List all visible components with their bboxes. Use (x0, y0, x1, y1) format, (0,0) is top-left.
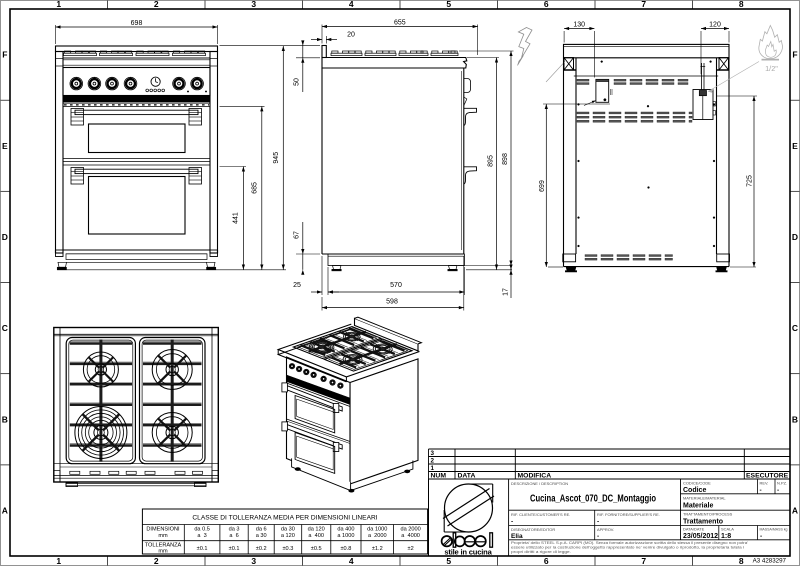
svg-text:TRATTAMENTO/PROCESS: TRATTAMENTO/PROCESS (683, 512, 733, 517)
svg-text:120: 120 (709, 21, 721, 28)
svg-text:da 120: da 120 (308, 527, 325, 533)
svg-text:MASSA/MASS kg: MASSA/MASS kg (760, 527, 788, 532)
svg-text:4: 4 (349, 0, 354, 9)
svg-text:1: 1 (56, 0, 61, 9)
svg-text:25: 25 (293, 282, 301, 289)
svg-text:±0.1: ±0.1 (197, 546, 208, 552)
svg-text:da 0.5: da 0.5 (194, 527, 210, 533)
svg-text:da 30: da 30 (281, 527, 295, 533)
svg-text:-: - (760, 533, 762, 540)
svg-text:da 400: da 400 (337, 527, 354, 533)
svg-text:20: 20 (347, 32, 355, 39)
svg-text:Elia: Elia (511, 533, 523, 540)
svg-text:698: 698 (131, 20, 143, 27)
svg-text:5: 5 (446, 0, 451, 9)
svg-text:a 30: a 30 (256, 533, 267, 539)
svg-text:895: 895 (488, 155, 495, 167)
svg-text:945: 945 (273, 152, 280, 164)
svg-text:da 2000: da 2000 (400, 527, 420, 533)
svg-text:598: 598 (386, 299, 398, 306)
svg-text:±2: ±2 (408, 546, 414, 552)
svg-text:±0.1: ±0.1 (229, 546, 240, 552)
svg-text:a 1000: a 1000 (337, 533, 354, 539)
svg-text:-: - (597, 533, 599, 540)
svg-text:a 400: a 400 (308, 533, 324, 539)
svg-text:6: 6 (544, 556, 549, 566)
svg-text:1/2": 1/2" (765, 64, 778, 73)
svg-text:D: D (2, 232, 8, 242)
svg-text:DISEGNATORE/EDITOR: DISEGNATORE/EDITOR (511, 527, 555, 532)
svg-text:8: 8 (739, 556, 744, 566)
svg-text:7: 7 (641, 556, 646, 566)
svg-text:1: 1 (431, 465, 435, 472)
svg-text:B: B (2, 414, 8, 424)
svg-text:-: - (760, 487, 762, 494)
svg-text:655: 655 (394, 19, 406, 26)
svg-text:B: B (792, 414, 798, 424)
svg-text:RIF. CLIENTE/CUSTOMER'S RE.: RIF. CLIENTE/CUSTOMER'S RE. (511, 512, 570, 517)
svg-text:4: 4 (349, 556, 354, 566)
svg-text:6: 6 (544, 0, 549, 9)
svg-text:E: E (792, 141, 798, 151)
svg-text:DESCRIZIONE / DESCRIPTION: DESCRIZIONE / DESCRIPTION (511, 481, 568, 486)
svg-text:2: 2 (431, 458, 435, 465)
svg-text:±0.8: ±0.8 (340, 546, 351, 552)
svg-text:130: 130 (573, 21, 585, 28)
svg-text:3: 3 (251, 556, 256, 566)
svg-text:DATA/DATE: DATA/DATE (683, 527, 705, 532)
svg-text:E: E (2, 141, 8, 151)
svg-text:2: 2 (154, 556, 159, 566)
svg-text:C: C (2, 323, 8, 333)
svg-text:A: A (792, 505, 798, 515)
svg-text:a 120: a 120 (281, 533, 295, 539)
svg-text:50: 50 (294, 78, 301, 86)
svg-text:SCALA: SCALA (721, 527, 734, 532)
svg-text:A3 4283297: A3 4283297 (753, 558, 787, 565)
svg-text:DIMENSIONI: DIMENSIONI (146, 527, 180, 533)
svg-text:23/05/2012: 23/05/2012 (683, 533, 718, 540)
svg-text:ESECUTORE: ESECUTORE (746, 473, 789, 480)
svg-text:N.PZ.: N.PZ. (777, 481, 787, 486)
svg-text:a 4000: a 4000 (401, 533, 420, 539)
svg-text:da 1000: da 1000 (367, 527, 387, 533)
svg-text:da 3: da 3 (229, 527, 240, 533)
svg-text:a 3: a 3 (197, 533, 206, 539)
svg-text:RIF. FORNITORE/SUPPLIER'S RE.: RIF. FORNITORE/SUPPLIER'S RE. (597, 512, 660, 517)
svg-text:17: 17 (503, 288, 510, 296)
svg-text:Materiale: Materiale (683, 503, 713, 510)
svg-text:Trattamento: Trattamento (683, 518, 723, 525)
svg-text:441: 441 (233, 212, 240, 224)
svg-text:Cucina_Ascot_070_DC_Montaggio: Cucina_Ascot_070_DC_Montaggio (530, 494, 656, 505)
svg-text:8: 8 (739, 0, 744, 9)
svg-text:699: 699 (539, 180, 546, 192)
svg-text:2: 2 (154, 0, 159, 9)
svg-text:-: - (511, 519, 513, 526)
svg-text:725: 725 (747, 175, 754, 187)
svg-text:3: 3 (251, 0, 256, 9)
svg-text:APPROV.: APPROV. (597, 527, 614, 532)
svg-text:DATA: DATA (458, 473, 476, 480)
svg-text:685: 685 (252, 182, 259, 194)
svg-text:-: - (597, 519, 599, 526)
svg-text:F: F (792, 50, 797, 60)
svg-text:Codice: Codice (683, 487, 706, 494)
svg-text:±1.2: ±1.2 (372, 546, 383, 552)
svg-text:1:8: 1:8 (721, 533, 731, 540)
svg-text:CODICE/CODE: CODICE/CODE (683, 481, 711, 486)
svg-text:D: D (792, 232, 798, 242)
svg-text:REV.: REV. (760, 481, 769, 486)
svg-text:stile in cucina: stile in cucina (444, 548, 492, 557)
svg-text:3: 3 (431, 450, 435, 457)
svg-text:A: A (2, 505, 8, 515)
svg-text:CLASSE DI TOLLERANZA MEDIA PER: CLASSE DI TOLLERANZA MEDIA PER DIMENSION… (192, 515, 377, 522)
svg-text:MODIFICA: MODIFICA (518, 473, 552, 480)
svg-text:898: 898 (502, 153, 509, 165)
svg-text:a 6: a 6 (229, 533, 238, 539)
svg-text:5: 5 (446, 556, 451, 566)
svg-text:da 6: da 6 (256, 527, 267, 533)
svg-text:F: F (2, 50, 7, 60)
svg-text:mm: mm (158, 533, 168, 539)
svg-text:C: C (792, 323, 798, 333)
svg-text:67: 67 (294, 231, 301, 239)
svg-text:MATERIALE/MATERIAL: MATERIALE/MATERIAL (683, 496, 726, 501)
svg-text:7: 7 (641, 0, 646, 9)
svg-text:NUM: NUM (431, 473, 447, 480)
svg-text:570: 570 (390, 282, 402, 289)
svg-text:-: - (777, 487, 779, 494)
svg-text:propri diritti a rigore di leg: propri diritti a rigore di legge. (511, 549, 571, 554)
svg-text:±0.2: ±0.2 (256, 546, 267, 552)
svg-text:a 2000: a 2000 (368, 533, 387, 539)
svg-text:1: 1 (56, 556, 61, 566)
svg-text:±0.3: ±0.3 (282, 546, 293, 552)
svg-text:±0.5: ±0.5 (311, 546, 322, 552)
svg-text:mm: mm (158, 549, 168, 555)
